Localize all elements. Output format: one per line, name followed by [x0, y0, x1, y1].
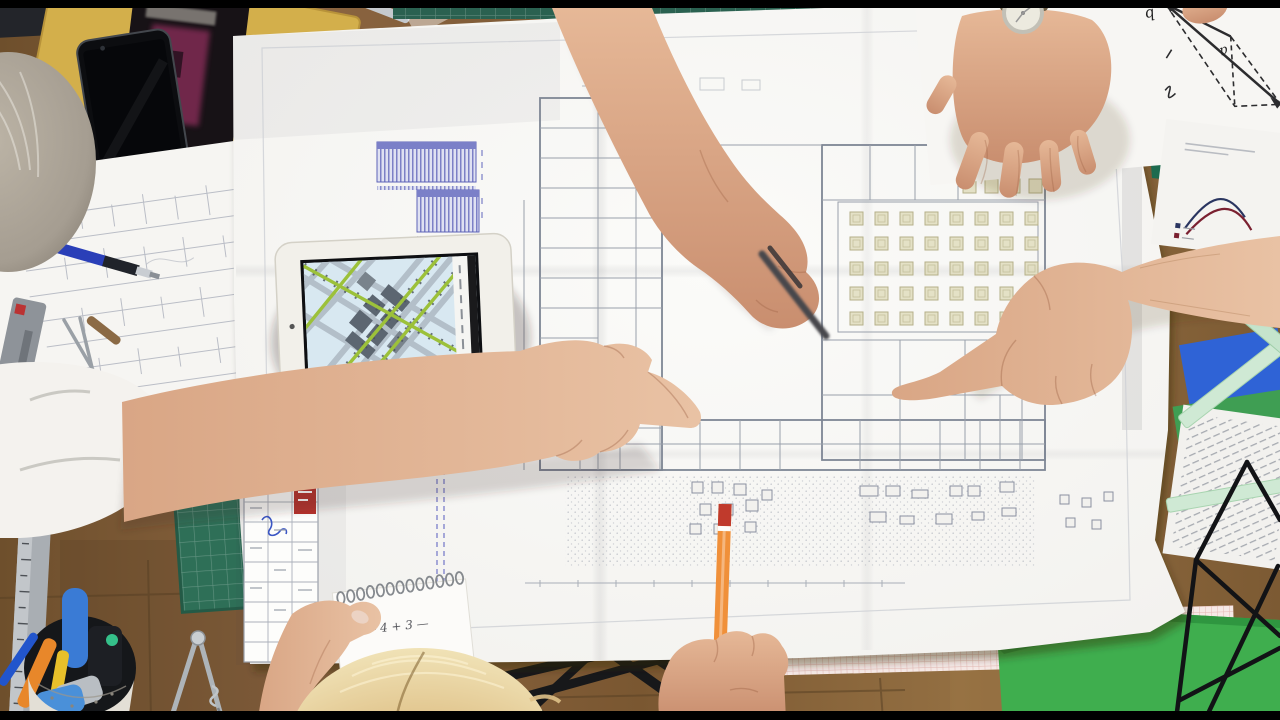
letterbox-top [0, 0, 1280, 8]
green-cap-dot [106, 634, 118, 646]
terrace-stipple [565, 475, 1035, 567]
letterbox-bottom [0, 711, 1280, 720]
scene-canvas: b a [0, 0, 1280, 720]
photo-stage: b a [0, 0, 1280, 720]
